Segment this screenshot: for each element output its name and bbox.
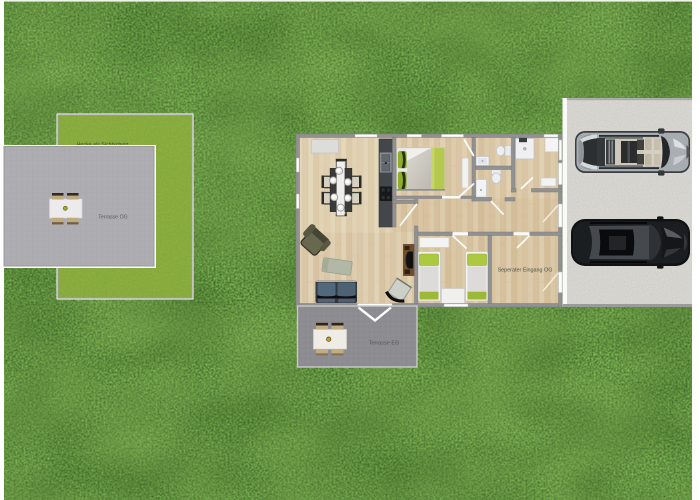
svg-text:Terrasse OG: Terrasse OG [98,215,127,221]
svg-text:Terrasse EG: Terrasse EG [369,341,400,347]
svg-text:Seperater Eingang OG: Seperater Eingang OG [498,268,553,274]
